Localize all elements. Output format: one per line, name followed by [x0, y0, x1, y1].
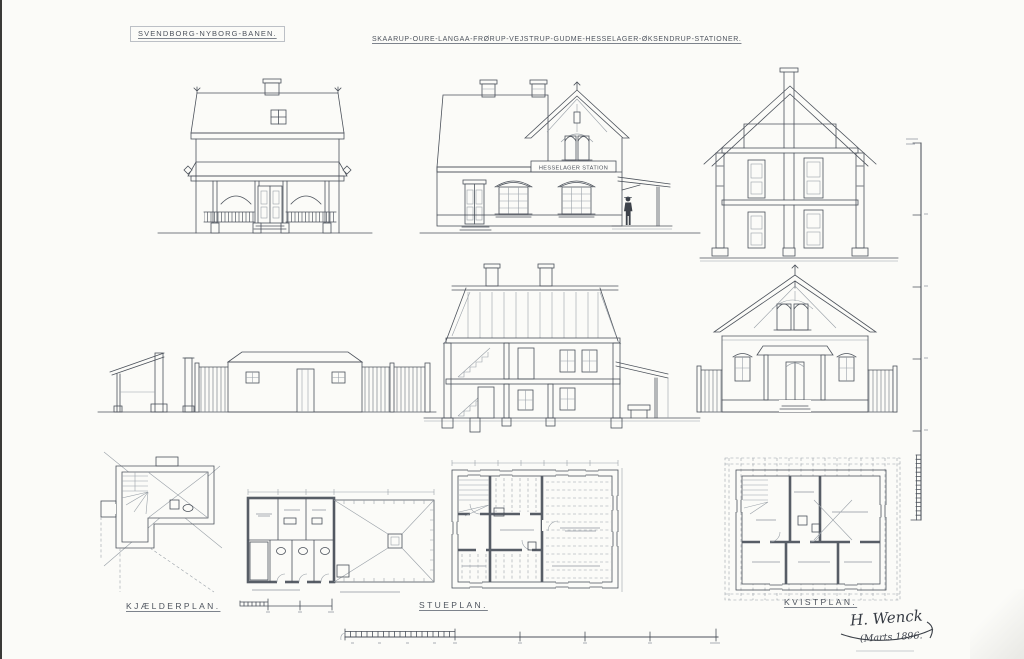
elevation-front: HESSELAGER STATION [437, 80, 672, 230]
plan-attic [725, 458, 900, 600]
plan-outbuilding [240, 489, 434, 612]
person-figure [624, 197, 632, 225]
stations-title: SKAARUP-OURE-LANGAA-FRØRUP-VEJSTRUP-GUDM… [372, 36, 741, 43]
scan-corner-shade [970, 589, 1024, 659]
label-basement-plan: KJÆLDERPLAN. [126, 601, 220, 611]
plan-ground-floor [451, 460, 622, 592]
section-shed [110, 353, 194, 412]
railway-title: SVENDBORG-NYBORG-BANEN. [130, 26, 285, 42]
label-attic-plan: KVISTPLAN. [784, 597, 857, 607]
scale-bar-horizontal [341, 629, 720, 643]
drawing-sheet: HESSELAGER STATION [0, 0, 1024, 659]
label-ground-floor-plan: STUEPLAN. [419, 600, 488, 610]
section-cross [704, 68, 876, 256]
elevation-rear-gable [697, 265, 897, 412]
plan-basement [101, 452, 222, 592]
station-sign-text: HESSELAGER STATION [539, 166, 608, 172]
drawing-canvas: HESSELAGER STATION [0, 0, 1024, 659]
elevation-end-veranda [184, 79, 351, 233]
elevation-outbuilding [195, 352, 430, 412]
scale-bar-vertical [906, 139, 928, 520]
section-longitudinal [442, 264, 668, 432]
